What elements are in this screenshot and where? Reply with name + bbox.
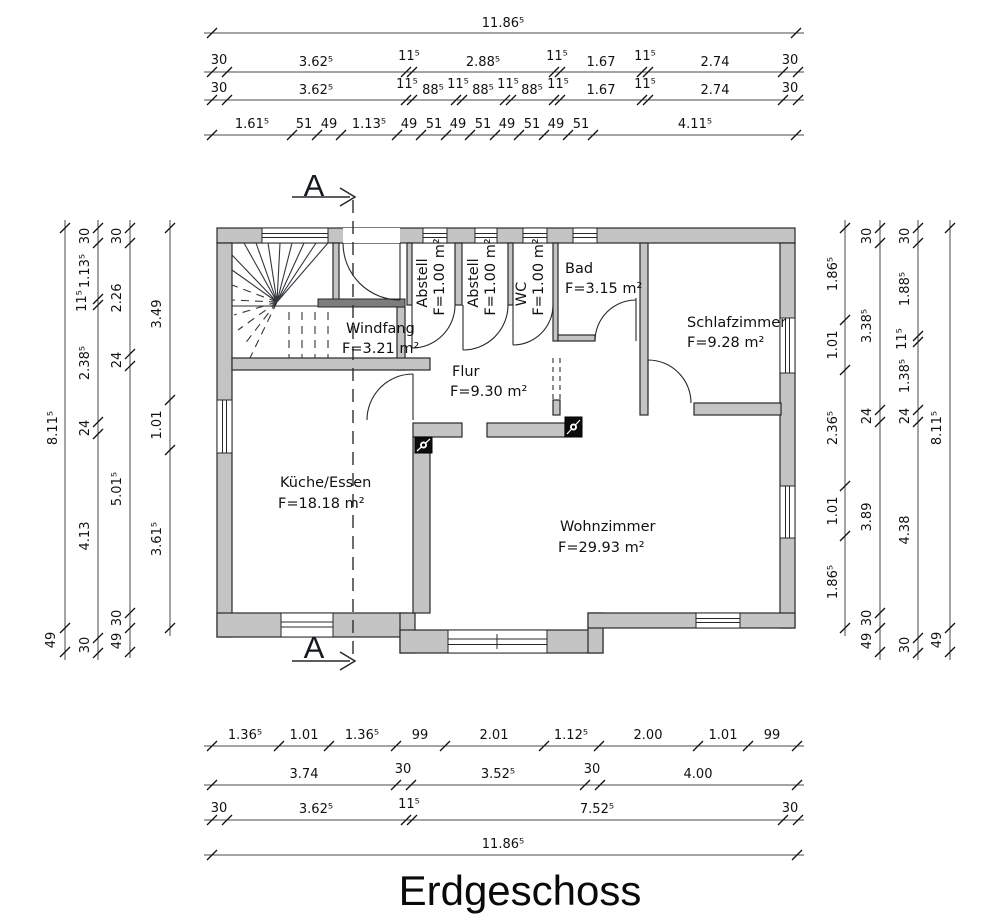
room-area-abstell2: F=1.00 m²: [483, 238, 499, 315]
dimension-chain-left-b: 30 1.13⁵ 11⁵ 2.38⁵ 24 4.13 30: [75, 220, 103, 660]
room-label-wohnzimmer: Wohnzimmer: [560, 519, 656, 535]
dim-label: 11⁵: [634, 77, 656, 92]
dim-label: 11⁵: [447, 77, 469, 92]
dim-label: 49: [401, 117, 418, 132]
dim-label: 1.67: [587, 55, 616, 70]
room-label-flur: Flur: [452, 364, 480, 380]
dimension-chain-right-total: 8.11⁵ 49: [930, 220, 955, 660]
dim-label: 3.49: [150, 300, 165, 329]
window: [448, 630, 547, 653]
dim-label: 3.74: [290, 767, 319, 782]
dim-label: 11⁵: [895, 328, 910, 350]
room-label-windfang: Windfang: [346, 321, 415, 337]
dim-label: 11⁵: [398, 797, 420, 812]
dim-label: 51: [573, 117, 590, 132]
room-area-schlafzimmer: F=9.28 m²: [687, 335, 764, 351]
stair-landing-edge: [318, 299, 405, 307]
door-entrance: [343, 243, 400, 300]
dim-label: 11⁵: [547, 77, 569, 92]
dim-label: 30: [211, 81, 228, 96]
room-label-wc: WC: [514, 282, 530, 306]
dim-label: 88⁵: [422, 83, 444, 98]
dim-label: 3.62⁵: [299, 55, 333, 70]
dim-label: 2.38⁵: [78, 346, 93, 380]
dim-label: 30: [211, 801, 228, 816]
room-area-kueche: F=18.18 m²: [278, 496, 365, 512]
dim-label: 24: [110, 352, 125, 369]
dim-label: 11.86⁵: [482, 837, 524, 852]
dim-label: 1.12⁵: [554, 728, 588, 743]
room-area-bad: F=3.15 m²: [565, 281, 642, 297]
dim-label: 51: [426, 117, 443, 132]
dim-label: 30: [78, 637, 93, 654]
dim-label: 2.00: [634, 728, 663, 743]
dim-label: 3.62⁵: [299, 802, 333, 817]
room-area-wc: F=1.00 m²: [531, 238, 547, 315]
room-label-abstell2: Abstell: [466, 258, 482, 307]
entrance-opening: [343, 228, 400, 243]
dim-label: 1.01: [709, 728, 738, 743]
dim-label: 30: [782, 81, 799, 96]
exterior-walls: [217, 228, 795, 653]
wall-opening-dashed: [553, 358, 560, 400]
dimension-chain-left-d: 3.49 1.01 3.61⁵: [150, 220, 175, 636]
section-label-bottom: A: [304, 630, 325, 665]
dim-label: 1.01: [826, 497, 841, 526]
room-area-wohnzimmer: F=29.93 m²: [558, 540, 645, 556]
door-schlafzimmer: [648, 360, 691, 403]
dim-label: 1.67: [587, 83, 616, 98]
dim-label: 3.52⁵: [481, 767, 515, 782]
dim-label: 51: [475, 117, 492, 132]
dim-label: 49: [860, 633, 875, 650]
dim-label: 3.61⁵: [150, 522, 165, 556]
dim-label: 11⁵: [497, 77, 519, 92]
dim-label: 11⁵: [546, 49, 568, 64]
door-kueche: [367, 374, 413, 420]
dim-label: 3.62⁵: [299, 83, 333, 98]
dim-label: 99: [764, 728, 781, 743]
dimension-chain-left-total: 8.11⁵ 49: [44, 220, 70, 660]
window: [262, 228, 328, 243]
dim-label: 2.36⁵: [826, 411, 841, 445]
dim-label: 11⁵: [75, 290, 90, 312]
dimension-chain-top-row1: 30 3.62⁵ 11⁵ 2.88⁵ 11⁵ 1.67 11⁵ 2.74 30: [204, 49, 804, 77]
dim-label: 4.38: [898, 516, 913, 545]
staircase: [232, 243, 328, 358]
dim-label: 11⁵: [396, 77, 418, 92]
dim-label: 30: [898, 637, 913, 654]
dimension-chain-top-row3: 1.61⁵ 51 49 1.13⁵ 49 51 49 51 49 51 49 5…: [204, 117, 804, 140]
dim-label: 8.11⁵: [930, 411, 945, 445]
dim-label: 51: [524, 117, 541, 132]
interior-walls: [232, 243, 781, 613]
dim-label: 3.89: [860, 503, 875, 532]
dim-label: 30: [110, 610, 125, 627]
dim-label: 88⁵: [521, 83, 543, 98]
dim-label: 49: [548, 117, 565, 132]
dim-label: 24: [860, 408, 875, 425]
dim-label: 1.01: [290, 728, 319, 743]
dim-label: 1.88⁵: [898, 272, 913, 306]
dim-label: 2.74: [701, 55, 730, 70]
dim-label: 24: [78, 420, 93, 437]
floor-plan-page: 11.86⁵ 30 3.62⁵ 11⁵ 2.88⁵ 11⁵ 1.67 11⁵ 2…: [0, 0, 1000, 920]
dim-label: 2.26: [110, 284, 125, 313]
dim-label: 49: [321, 117, 338, 132]
window: [217, 400, 232, 453]
chimney-icon: [415, 437, 432, 453]
dim-label: 49: [930, 632, 945, 649]
dimension-chain-bottom-row3: 30 3.62⁵ 11⁵ 7.52⁵ 30: [204, 797, 804, 825]
dim-label: 1.13⁵: [78, 254, 93, 288]
dim-label: 49: [450, 117, 467, 132]
dim-label: 30: [860, 610, 875, 627]
room-area-windfang: F=3.21 m²: [342, 341, 419, 357]
dimension-chain-right-g: 30 1.88⁵ 11⁵ 1.38⁵ 24 4.38 30: [895, 220, 923, 660]
room-label-bad: Bad: [565, 261, 593, 277]
dim-label: 1.01: [150, 411, 165, 440]
dim-label: 49: [110, 633, 125, 650]
dimension-chain-bottom-row2: 3.74 30 3.52⁵ 30 4.00: [204, 762, 804, 790]
page-title: Erdgeschoss: [399, 867, 642, 914]
dim-label: 1.01: [826, 331, 841, 360]
window: [573, 228, 597, 243]
dim-label: 4.13: [78, 522, 93, 551]
room-area-flur: F=9.30 m²: [450, 384, 527, 400]
dim-label: 8.11⁵: [46, 411, 61, 445]
window: [696, 613, 740, 628]
dim-label: 11.86⁵: [482, 16, 524, 31]
dim-label: 3.38⁵: [860, 309, 875, 343]
dim-label: 49: [44, 632, 59, 649]
window: [780, 486, 795, 538]
dim-label: 30: [860, 228, 875, 245]
dimension-chain-bottom-row1: 1.36⁵ 1.01 1.36⁵ 99 2.01 1.12⁵ 2.00 1.01…: [204, 728, 804, 751]
dim-label: 1.61⁵: [235, 117, 269, 132]
dimension-chain-right-f: 30 3.38⁵ 24 3.89 30 49: [860, 220, 885, 660]
dim-label: 30: [782, 801, 799, 816]
dim-label: 51: [296, 117, 313, 132]
room-label-schlafzimmer: Schlafzimmer: [687, 315, 786, 331]
dim-label: 1.36⁵: [345, 728, 379, 743]
dim-label: 4.00: [684, 767, 713, 782]
dim-label: 1.13⁵: [352, 117, 386, 132]
dim-label: 49: [499, 117, 516, 132]
dim-label: 88⁵: [472, 83, 494, 98]
dimension-chain-right-e: 1.86⁵ 1.01 2.36⁵ 1.01 1.86⁵: [826, 220, 850, 636]
dim-label: 1.86⁵: [826, 565, 841, 599]
dim-label: 1.36⁵: [228, 728, 262, 743]
dimension-chain-bottom-total: 11.86⁵: [204, 837, 804, 860]
floor-plan-drawing: 11.86⁵ 30 3.62⁵ 11⁵ 2.88⁵ 11⁵ 1.67 11⁵ 2…: [0, 0, 1000, 920]
dim-label: 11⁵: [398, 49, 420, 64]
dimension-chain-top-row2: 30 3.62⁵ 11⁵ 88⁵ 11⁵ 88⁵ 11⁵ 88⁵ 11⁵ 1.6…: [204, 77, 804, 105]
dim-label: 30: [898, 228, 913, 245]
room-label-kueche: Küche/Essen: [280, 475, 371, 491]
dimension-chain-left-c: 30 2.26 24 5.01⁵ 30 49: [110, 220, 135, 658]
dim-label: 2.88⁵: [466, 55, 500, 70]
dim-label: 30: [782, 53, 799, 68]
dim-label: 30: [395, 762, 412, 777]
chimney-icon: [565, 417, 582, 437]
door-bad: [595, 298, 636, 341]
dim-label: 99: [412, 728, 429, 743]
dim-label: 7.52⁵: [580, 802, 614, 817]
dim-label: 1.86⁵: [826, 257, 841, 291]
dim-label: 30: [584, 762, 601, 777]
dim-label: 30: [110, 228, 125, 245]
dim-label: 1.38⁵: [898, 359, 913, 393]
dim-label: 4.11⁵: [678, 117, 712, 132]
dim-label: 24: [898, 408, 913, 425]
dim-label: 2.01: [480, 728, 509, 743]
dim-label: 2.74: [701, 83, 730, 98]
dim-label: 30: [211, 53, 228, 68]
windows: [217, 228, 795, 653]
dim-label: 30: [78, 228, 93, 245]
room-labels: Windfang F=3.21 m² Abstell F=1.00 m² Abs…: [278, 238, 786, 556]
room-label-abstell1: Abstell: [415, 258, 431, 307]
dimension-chain-top-total: 11.86⁵: [204, 16, 804, 38]
section-label-top: A: [304, 168, 325, 203]
room-area-abstell1: F=1.00 m²: [432, 238, 448, 315]
dim-label: 5.01⁵: [110, 472, 125, 506]
dim-label: 11⁵: [634, 49, 656, 64]
